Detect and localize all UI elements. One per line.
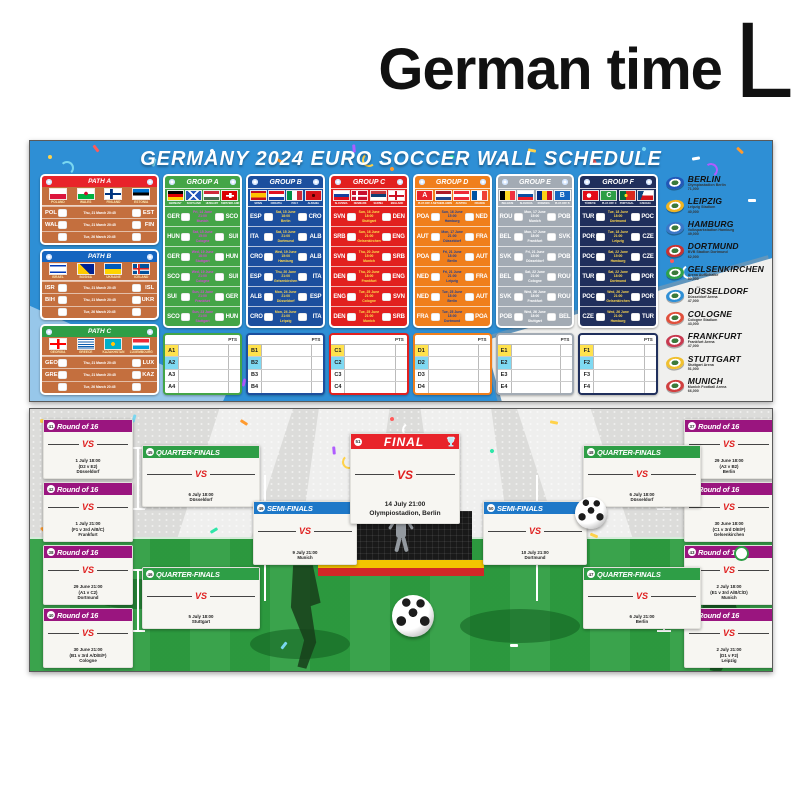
- group-panel: GROUP E BELGIUM SLOVAKIA: [496, 174, 575, 328]
- home-team-code: GER: [167, 254, 181, 260]
- team-write-in-cell: [512, 382, 561, 393]
- group-match-row: DEN Tue, 25 June 21:00 Munich SRB: [331, 306, 406, 326]
- flag-cell: ISRAEL: [44, 264, 72, 279]
- rank-slot-chip: A3: [165, 370, 179, 381]
- match-venue: Leipzig: [606, 239, 629, 243]
- country-name: SLOVENIA: [335, 201, 348, 205]
- score-box: [215, 233, 224, 241]
- flag-cell: PLAY-OFF B: [553, 191, 571, 205]
- score-box: [547, 253, 556, 261]
- match-venue: Frankfurt: [524, 299, 547, 303]
- score-box: [132, 221, 141, 229]
- score-box: [382, 233, 391, 241]
- rank-slot-chip: C2: [331, 357, 345, 368]
- flag-cell: ITALY: [286, 191, 304, 205]
- away-team-code: FRA: [474, 234, 488, 240]
- score-box: [514, 313, 523, 321]
- home-team-code: GRE: [45, 372, 58, 378]
- round-of-16-header: 40 Round of 16: [44, 609, 132, 621]
- product-title: German time L: [378, 10, 794, 109]
- round-of-16-header: 43 Round of 16: [685, 546, 773, 558]
- match-venue: Hamburg: [606, 319, 629, 323]
- rank-slot-chip: D4: [415, 382, 429, 393]
- match-date: Tue, 25 June 21:00: [357, 290, 380, 299]
- score-box: [382, 273, 391, 281]
- points-cell: [228, 382, 240, 393]
- group-flags-row: PLAY-OFF A NETHERLANDS AUSTRIA: [415, 189, 490, 207]
- host-city-item: LEIPZIG Leipzig Stadium 40,000: [666, 197, 764, 214]
- match-number-badge: 48: [587, 448, 595, 456]
- away-team-code: ALB: [307, 234, 321, 240]
- round-label: Round of 16: [57, 611, 98, 620]
- pts-label: PTS: [395, 337, 404, 342]
- standings-row: D1: [415, 345, 490, 356]
- home-team-code: ESP: [250, 214, 264, 220]
- score-box: [631, 253, 640, 261]
- score-box: [465, 253, 474, 261]
- team-write-in-cell: [262, 345, 311, 356]
- city-text: BERLIN Olympiastadion Berlin 71,000: [688, 175, 726, 192]
- country-name: LUXEMBOURG: [130, 350, 153, 354]
- rank-slot-chip: B2: [248, 357, 262, 368]
- group-match-row: ESP Sat, 15 June 18:00 Berlin CRO: [248, 207, 323, 226]
- match-info: Fri, 21 June 18:00 Berlin: [440, 250, 465, 263]
- away-team-code: SVN: [391, 294, 405, 300]
- match-number-badge: 42: [47, 485, 55, 493]
- stadium-icon: [665, 378, 684, 392]
- flag-cell: GREECE: [72, 339, 100, 354]
- group-standings-table: PTS C1 C2: [329, 333, 408, 395]
- pts-label: PTS: [561, 337, 570, 342]
- match-number-badge: 46: [146, 570, 154, 578]
- match-info: Sun, 16 June 15:00 Hamburg: [440, 210, 465, 223]
- match-info: Tue, 26 March 20:45: [67, 235, 132, 239]
- euro-logo-icon: [46, 254, 52, 260]
- match-date: Mon, 17 June 15:00: [524, 210, 547, 219]
- match-venue: Frankfurt: [357, 279, 380, 283]
- brand-badge: [734, 546, 749, 561]
- score-box: [132, 371, 141, 379]
- score-box: [596, 313, 605, 321]
- match-date: Sat, 15 June 15:00: [191, 230, 214, 239]
- match-date: Sat, 22 June 18:00: [606, 270, 629, 279]
- group-flags-row: GERMANY SCOTLAND HUNGARY: [165, 189, 240, 207]
- match-info: Wed, 19 June 15:00 Hamburg: [273, 250, 298, 263]
- rank-slot-chip: B1: [248, 345, 262, 356]
- match-info: Tue, 25 June 21:00 Munich: [356, 310, 381, 323]
- round-of-16-header: 42 Round of 16: [44, 483, 132, 495]
- host-city-item: DORTMUND BVB Stadion Dortmund 62,000: [666, 242, 764, 259]
- match-date: Fri, 21 June 18:00: [441, 250, 464, 259]
- away-team-code: UKR: [141, 297, 154, 303]
- standings-row: C2: [331, 356, 406, 368]
- standings-row: D4: [415, 381, 490, 393]
- country-name: KAZAKHSTAN: [103, 350, 125, 354]
- group-flags-row: TÜRKIYE PLAY-OFF C PORTUGAL: [580, 189, 655, 207]
- team-write-in-cell: [594, 370, 643, 381]
- group-flags-row: SPAIN CROATIA ITALY: [248, 189, 323, 207]
- group-match-row: SVK Wed, 26 June 18:00 Frankfurt ROU: [498, 286, 573, 306]
- score-box: [465, 293, 474, 301]
- match-number-badge: 51: [354, 438, 362, 446]
- playoff-path-panel: PATH B ISRAEL BOSNIA: [40, 249, 159, 320]
- match-info: Tue, 25 June 18:00 Dortmund: [440, 310, 465, 323]
- home-team-code: SCO: [167, 274, 181, 280]
- country-flag-icon: [287, 191, 302, 200]
- points-cell: [560, 357, 572, 368]
- country-name: ISRAEL: [52, 275, 64, 279]
- match-city: Gelsenkirchen: [687, 532, 771, 538]
- match-date: Mon, 17 June 21:00: [441, 230, 464, 239]
- country-flag-icon: [78, 264, 94, 274]
- country-flag-icon: [371, 191, 386, 200]
- country-name: SLOVAKIA: [519, 201, 532, 205]
- country-flag-icon: [352, 191, 367, 200]
- group-header: GROUP D: [415, 176, 490, 189]
- country-name: PORTUGAL: [620, 201, 634, 205]
- home-team-code: ITA: [250, 234, 264, 240]
- flag-cell: SERBIA: [369, 191, 387, 205]
- round-of-16-left-column: 41 Round of 16 VS 1 July 18:00 (D2 v E2)…: [43, 419, 133, 668]
- away-team-code: TUR: [640, 314, 654, 320]
- standings-header: PTS: [331, 335, 406, 345]
- rank-slot-chip: A1: [165, 345, 179, 356]
- pitch-shadow: [460, 609, 580, 643]
- country-flag-icon: [269, 191, 284, 200]
- home-team-code: POC: [582, 254, 596, 260]
- match-venue: Dortmund: [606, 219, 629, 223]
- match-info: Sat, 22 June 15:00 Hamburg: [605, 250, 630, 263]
- match-info: Mon, 24 June 21:00 Leipzig: [273, 310, 298, 323]
- points-cell: [560, 370, 572, 381]
- match-info: Thu, 20 June 18:00 Frankfurt: [356, 270, 381, 283]
- city-text: HAMBURG Volksparkstadion Hamburg 49,000: [688, 220, 734, 237]
- country-flag-icon: [306, 191, 321, 200]
- match-date: Sun, 23 June 21:00: [191, 290, 214, 299]
- group-matches: TUR Tue, 18 June 18:00 Dortmund POC: [580, 207, 655, 326]
- group-match-row: FRA Tue, 25 June 18:00 Dortmund POA: [415, 306, 490, 326]
- match-date: Wed, 26 June 21:00: [606, 310, 629, 319]
- vs-row: VS: [44, 558, 132, 583]
- score-box: [181, 313, 190, 321]
- score-box: [215, 273, 224, 281]
- group-match-row: POA Sun, 16 June 15:00 Hamburg NED: [415, 207, 490, 226]
- round-label: Round of 16: [57, 548, 98, 557]
- match-city: Dortmund: [46, 595, 130, 601]
- points-cell: [478, 382, 490, 393]
- group-standings-table: PTS E1 E2: [496, 333, 575, 395]
- group-matches: GER Fri, 14 June 21:00 Munich SCO: [165, 207, 240, 326]
- flag-cell: KAZAKHSTAN: [100, 339, 128, 354]
- match-number-badge: 47: [587, 570, 595, 578]
- team-write-in-cell: [345, 357, 394, 368]
- points-cell: [395, 370, 407, 381]
- score-box: [181, 273, 190, 281]
- group-match-row: HUN Sat, 15 June 15:00 Cologne SUI: [165, 226, 240, 246]
- match-venue: Munich: [357, 319, 380, 323]
- away-team-code: CZE: [640, 234, 654, 240]
- match-date: Sun, 23 June 21:00: [191, 310, 214, 319]
- score-box: [431, 293, 440, 301]
- standings-row: E4: [498, 381, 573, 393]
- group-match-row: ESP Thu, 20 June 21:00 Gelsenkirchen ITA: [248, 266, 323, 286]
- rank-slot-chip: A4: [165, 382, 179, 393]
- score-box: [215, 313, 224, 321]
- score-box: [181, 293, 190, 301]
- country-name: SERBIA: [373, 201, 383, 205]
- round-label: Round of 16: [57, 422, 98, 431]
- team-write-in-cell: [594, 357, 643, 368]
- rank-slot-chip: A2: [165, 357, 179, 368]
- flag-cell: GEORGIA: [44, 339, 72, 354]
- points-cell: [560, 382, 572, 393]
- rank-slot-chip: F2: [580, 357, 594, 368]
- pts-label: PTS: [312, 337, 321, 342]
- country-name: DENMARK: [353, 201, 366, 205]
- euro-logo-icon: [147, 254, 153, 260]
- match-info: Fri, 21 June 21:00 Leipzig: [440, 270, 465, 283]
- home-team-code: TUR: [582, 214, 596, 220]
- soccer-ball: [392, 595, 434, 637]
- match-venue: Berlin: [274, 219, 297, 223]
- round-label: QUARTER-FINALS: [156, 570, 220, 579]
- home-team-code: GER: [167, 214, 181, 220]
- country-flag-icon: [50, 189, 66, 199]
- points-cell: [228, 370, 240, 381]
- match-info: Sun, 16 June 18:00 Stuttgart: [356, 210, 381, 223]
- group-match-row: ALB Mon, 24 June 21:00 Düsseldorf ESP: [248, 286, 323, 306]
- home-team-code: SVN: [333, 214, 347, 220]
- match-date: Tue, 18 June 21:00: [606, 230, 629, 239]
- score-box: [58, 296, 67, 304]
- group-match-row: SCO Sun, 23 June 21:00 Stuttgart HUN: [165, 306, 240, 326]
- score-box: [547, 213, 556, 221]
- round-label: Round of 16: [698, 548, 739, 557]
- match-venue: Olympiostadion, Berlin: [353, 510, 457, 518]
- match-venue: Cologne: [357, 299, 380, 303]
- group-stage-content: PATH A POLAND WALES: [40, 174, 764, 395]
- match-number-badge: 38: [47, 548, 55, 556]
- home-team-code: POC: [582, 294, 596, 300]
- country-flag-icon: [620, 191, 635, 200]
- rank-slot-chip: D2: [415, 357, 429, 368]
- match-number-badge: 41: [47, 422, 55, 430]
- score-box: [264, 253, 273, 261]
- points-cell: [478, 345, 490, 356]
- away-team-code: POR: [640, 294, 654, 300]
- host-city-item: GELSENKIRCHEN Arena AufSchalke 50,000: [666, 265, 764, 282]
- match-date: Wed, 19 June 18:00: [191, 250, 214, 259]
- match-info: Sat, 15 June 21:00 Dortmund: [273, 230, 298, 243]
- team-write-in-cell: [262, 370, 311, 381]
- group-header: GROUP C: [331, 176, 406, 189]
- away-team-code: POB: [556, 214, 570, 220]
- group-header: GROUP F: [580, 176, 655, 189]
- playoff-flags-row: POLAND WALES FINLAND: [42, 187, 157, 206]
- score-box: [58, 371, 67, 379]
- away-team-code: ITA: [307, 314, 321, 320]
- standings-row: E2: [498, 356, 573, 368]
- standings-row: C1: [331, 345, 406, 356]
- match-date: Sat, 15 June 18:00: [274, 210, 297, 219]
- match-date: Fri, 21 June 15:00: [524, 250, 547, 259]
- score-box: [596, 213, 605, 221]
- score-box: [431, 213, 440, 221]
- match-venue: Düsseldorf: [524, 259, 547, 263]
- product-title-text: German time: [378, 36, 722, 103]
- group-match-row: TUR Sat, 22 June 18:00 Dortmund POR: [580, 266, 655, 286]
- team-write-in-cell: [179, 370, 228, 381]
- final-header: 51 FINAL: [351, 434, 459, 449]
- group-header: GROUP A: [165, 176, 240, 189]
- score-box: [215, 293, 224, 301]
- group-match-row: ITA Sat, 15 June 21:00 Dortmund ALB: [248, 226, 323, 246]
- team-write-in-cell: [345, 382, 394, 393]
- score-box: [514, 293, 523, 301]
- home-team-code: WAL: [45, 222, 58, 228]
- score-box: [547, 313, 556, 321]
- group-match-row: POC Sat, 22 June 15:00 Hamburg CZE: [580, 246, 655, 266]
- euro-logo-icon: [502, 179, 508, 185]
- country-flag-icon: [583, 191, 598, 200]
- score-box: [431, 253, 440, 261]
- standings-header: PTS: [498, 335, 573, 345]
- match-info: Mon, 24 June 21:00 Düsseldorf: [273, 290, 298, 303]
- rank-slot-chip: B4: [248, 382, 262, 393]
- country-name: CZECHIA: [640, 201, 651, 205]
- standings-header: PTS: [415, 335, 490, 345]
- group-header: GROUP E: [498, 176, 573, 189]
- points-cell: [311, 357, 323, 368]
- group-match-row: CZE Wed, 26 June 21:00 Hamburg TUR: [580, 306, 655, 326]
- euro-logo-icon: [252, 179, 258, 185]
- group-standings-table: PTS F1 F2: [578, 333, 657, 395]
- team-write-in-cell: [262, 357, 311, 368]
- away-team-code: ALB: [307, 254, 321, 260]
- country-name: ROMANIA: [538, 201, 550, 205]
- group-match-row: CRO Mon, 24 June 21:00 Leipzig ITA: [248, 306, 323, 326]
- country-flag-icon: [601, 191, 616, 200]
- match-venue: Berlin: [441, 299, 464, 303]
- match-info: Thu, 21 March 20:45: [67, 211, 132, 215]
- score-box: [264, 313, 273, 321]
- country-flag-icon: [417, 191, 432, 200]
- team-write-in-cell: [345, 370, 394, 381]
- points-cell: [311, 370, 323, 381]
- match-venue: Leipzig: [274, 319, 297, 323]
- euro-logo-icon: [584, 179, 590, 185]
- country-name: SWITZERLAND: [221, 201, 239, 205]
- match-venue: Munich: [357, 259, 380, 263]
- city-text: MUNICH Munich Football Arena 66,000: [688, 377, 727, 394]
- match-number-badge: 40: [47, 611, 55, 619]
- flag-cell: UKRAINE: [100, 264, 128, 279]
- flag-cell: SWITZERLAND: [221, 191, 239, 205]
- match-info: Sun, 23 June 21:00 Stuttgart: [190, 310, 215, 323]
- stadium-capacity: 66,000: [688, 390, 727, 394]
- home-team-code: NED: [417, 294, 431, 300]
- score-box: [382, 253, 391, 261]
- team-write-in-cell: [179, 357, 228, 368]
- score-box: [596, 293, 605, 301]
- pts-label: PTS: [478, 337, 487, 342]
- country-flag-icon: [638, 191, 653, 200]
- points-cell: [311, 382, 323, 393]
- home-team-code: CRO: [250, 314, 264, 320]
- flag-cell: SPAIN: [249, 191, 267, 205]
- trophy-icon: [446, 436, 456, 448]
- team-write-in-cell: [429, 357, 478, 368]
- away-team-code: DEN: [391, 214, 405, 220]
- standings-row: B3: [248, 369, 323, 381]
- bracket-line: [137, 569, 139, 632]
- country-flag-icon: [78, 339, 94, 349]
- match-city: Düsseldorf: [46, 469, 130, 475]
- match-venue: Stuttgart: [524, 319, 547, 323]
- points-cell: [395, 382, 407, 393]
- country-flag-icon: [186, 191, 201, 200]
- score-box: [215, 253, 224, 261]
- score-box: [347, 213, 356, 221]
- flag-cell: ENGLAND: [387, 191, 405, 205]
- euro-logo-icon: [397, 179, 403, 185]
- round-label: Round of 16: [698, 422, 739, 431]
- points-cell: [395, 357, 407, 368]
- playoff-match-row: POL Thu, 21 March 20:45 EST: [42, 206, 157, 218]
- group-panel: GROUP D PLAY-OFF A NETHERLAN: [413, 174, 492, 328]
- playoff-match-row: WAL Thu, 21 March 20:45 FIN: [42, 218, 157, 230]
- team-write-in-cell: [594, 382, 643, 393]
- playoff-match-row: GEO Thu, 21 March 20:45 LUX: [42, 356, 157, 368]
- points-cell: [311, 345, 323, 356]
- score-box: [181, 233, 190, 241]
- score-box: [58, 209, 67, 217]
- score-box: [132, 284, 141, 292]
- score-box: [514, 253, 523, 261]
- city-text: FRANKFURT Frankfurt Arena 47,000: [688, 332, 742, 349]
- group-standings-table: PTS B1 B2: [246, 333, 325, 395]
- score-box: [181, 213, 190, 221]
- group-match-row: CRO Wed, 19 June 15:00 Hamburg ALB: [248, 246, 323, 266]
- playoff-path-panel: PATH C GEORGIA GREECE: [40, 324, 159, 395]
- city-text: GELSENKIRCHEN Arena AufSchalke 50,000: [688, 265, 764, 282]
- away-team-code: SUI: [224, 274, 238, 280]
- group-panel: GROUP B SPAIN CROATIA: [246, 174, 325, 328]
- group-match-row: SVK Fri, 21 June 15:00 Düsseldorf POB: [498, 246, 573, 266]
- country-flag-icon: [472, 191, 487, 200]
- group-standings-table: PTS D1 D2: [413, 333, 492, 395]
- country-flag-icon: [133, 189, 149, 199]
- soccer-ball: [575, 497, 607, 529]
- team-write-in-cell: [429, 382, 478, 393]
- team-write-in-cell: [262, 382, 311, 393]
- score-box: [58, 308, 67, 316]
- flag-cell: ESTONIA: [127, 189, 155, 204]
- match-venue: Düsseldorf: [274, 299, 297, 303]
- city-text: DORTMUND BVB Stadion Dortmund 62,000: [688, 242, 739, 259]
- country-name: ALBANIA: [308, 201, 319, 205]
- match-venue: Cologne: [524, 279, 547, 283]
- stadium-capacity: 47,000: [688, 345, 742, 349]
- away-team-code: SRB: [391, 314, 405, 320]
- country-flag-icon: [537, 191, 552, 200]
- playoff-path-name: PATH A: [88, 178, 111, 185]
- flag-cell: PLAY-OFF A: [416, 191, 434, 205]
- country-flag-icon: [105, 264, 121, 274]
- standings-row: F3: [580, 369, 655, 381]
- country-flag-icon: [105, 339, 121, 349]
- host-cities-list: BERLIN Olympiastadion Berlin 71,000 LEIP…: [662, 174, 764, 395]
